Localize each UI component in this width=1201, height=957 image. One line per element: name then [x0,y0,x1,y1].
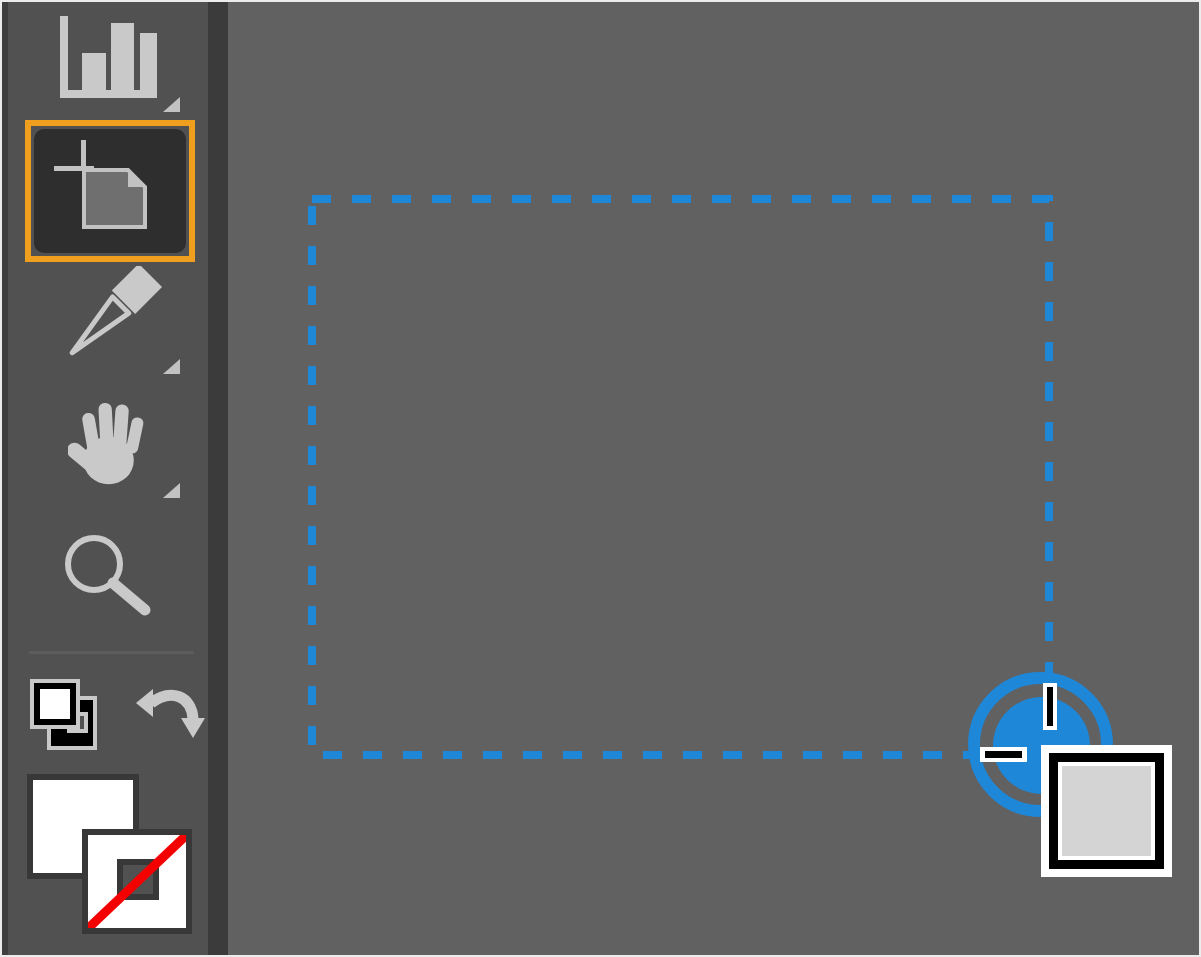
swap-fill-stroke-button[interactable] [135,682,205,752]
flyout-triangle-icon [163,97,180,112]
app-window [0,0,1201,957]
panel-divider [29,651,194,654]
magnifier-icon [60,530,155,620]
tools-panel [2,2,208,955]
stroke-swatch-none[interactable] [82,829,192,934]
default-fill-stroke-button[interactable] [29,678,99,752]
crosshair-horizontal-arm [980,747,1027,762]
flyout-triangle-icon [163,483,180,498]
panel-left-edge [2,2,8,955]
artboard-icon [48,138,148,232]
tool-button-artboard-selected[interactable] [25,120,195,262]
tool-button-slice[interactable] [57,264,185,376]
tool-button-column-graph[interactable] [57,10,185,115]
swap-arrows-icon [135,682,205,752]
tool-button-hand[interactable] [57,395,185,502]
none-slash-icon [82,829,192,934]
bar-chart-icon [60,14,160,100]
flyout-triangle-icon [163,359,180,374]
knife-icon [57,266,167,372]
panel-right-edge [208,2,228,955]
crosshair-vertical-arm [1043,683,1057,730]
tool-button-zoom[interactable] [60,530,160,622]
artboard-cursor-badge [1041,745,1172,877]
hand-icon [68,400,152,490]
